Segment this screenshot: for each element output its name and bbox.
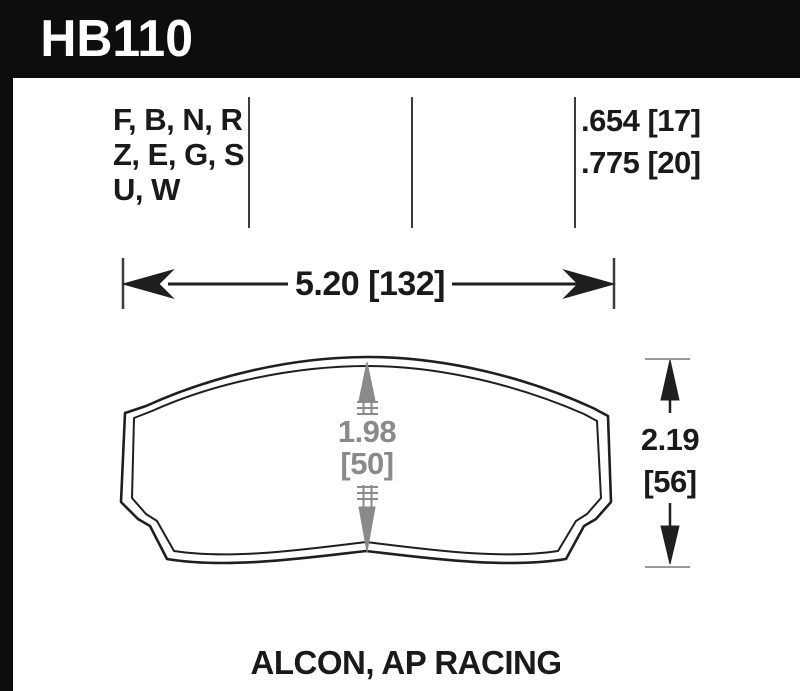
pad-drawing: [0, 0, 800, 691]
height-dimension-value: 2.19: [641, 419, 699, 461]
height-dimension-metric: [56]: [641, 461, 699, 503]
arrowhead-up-icon: [661, 360, 679, 400]
width-dimension-label: 5.20 [132]: [295, 265, 445, 304]
center-dimension-metric: [50]: [338, 448, 396, 480]
arrowhead-up-icon: [359, 362, 375, 401]
diagram-canvas: HB110 F, B, N, R Z, E, G, S U, W .654 [1…: [0, 0, 800, 691]
center-dimension-value: 1.98: [338, 416, 396, 448]
arrowhead-left-icon: [123, 270, 173, 298]
caliper-application-label: ALCON, AP RACING: [250, 644, 561, 682]
arrowhead-down-icon: [359, 507, 375, 552]
center-dimension-label: 1.98 [50]: [338, 416, 396, 480]
height-dimension-label: 2.19 [56]: [641, 419, 699, 503]
arrowhead-down-icon: [661, 526, 679, 564]
